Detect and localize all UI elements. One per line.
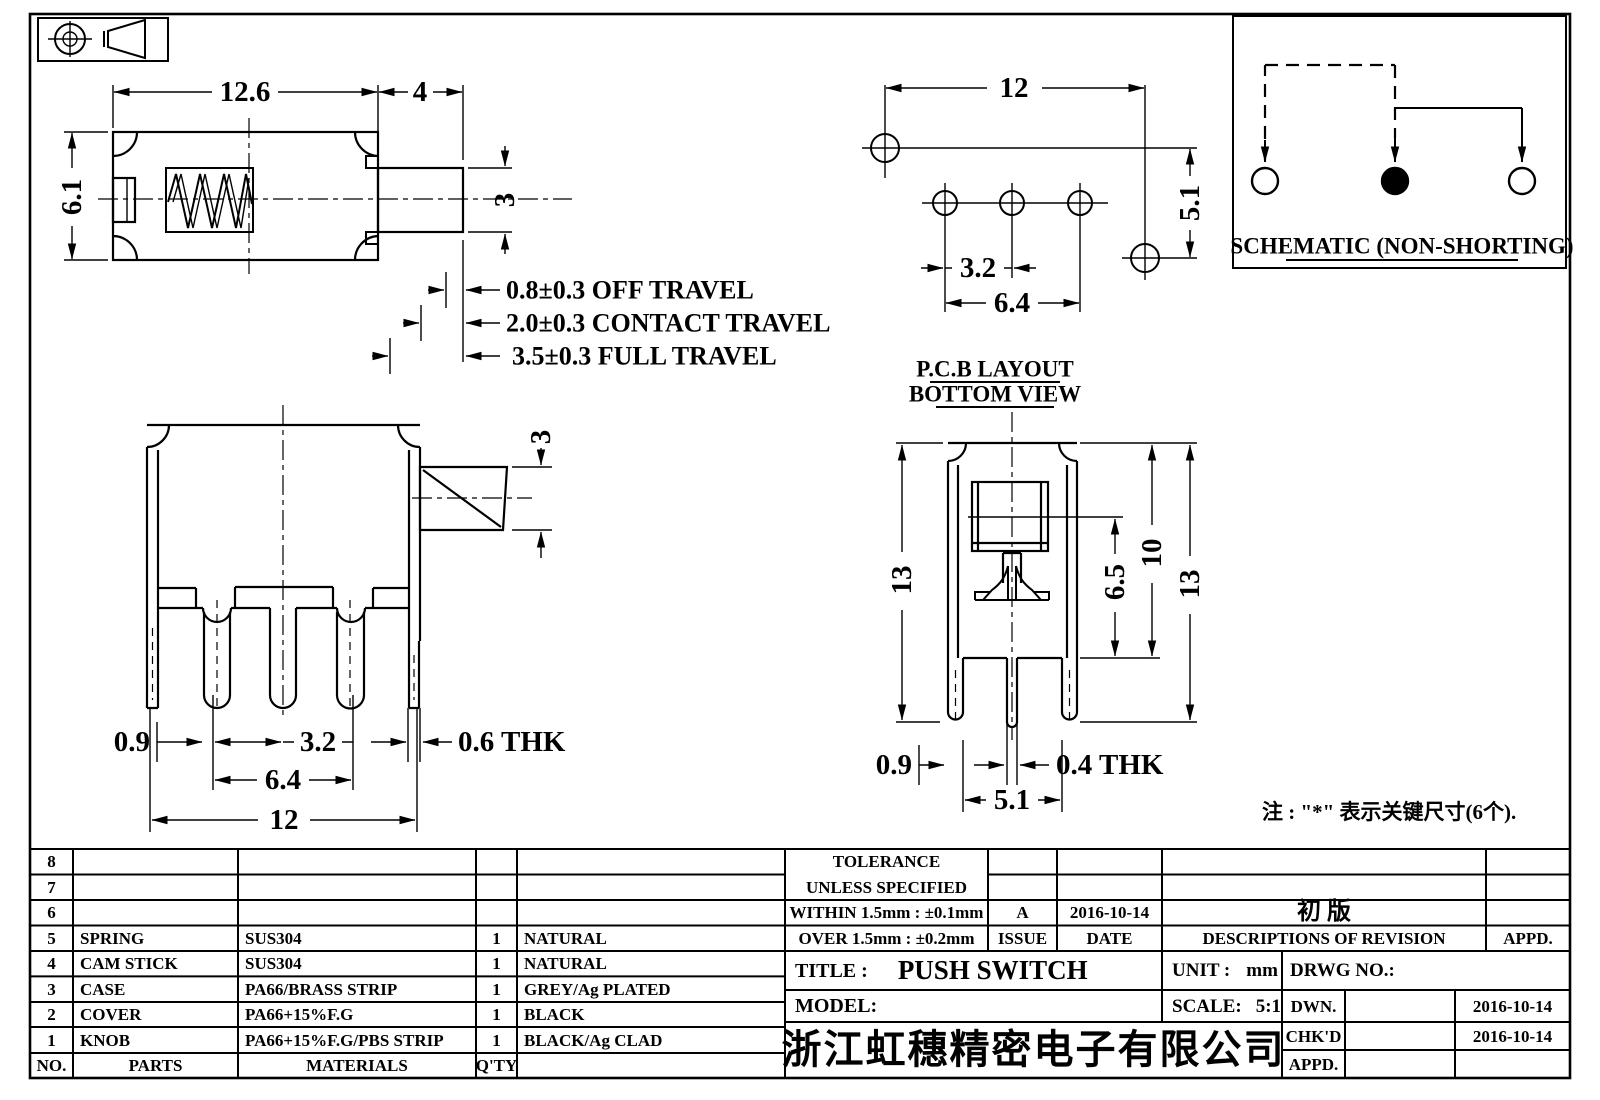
tolerance-subtitle: UNLESS SPECIFIED bbox=[785, 874, 988, 900]
pcb-caption-line1: P.C.B LAYOUT bbox=[916, 357, 1073, 382]
parts-row-qty-2: 1 bbox=[476, 1002, 517, 1027]
dim-full-travel: 3.5±0.3 FULL TRAVEL bbox=[512, 342, 777, 371]
parts-row-no-3: 3 bbox=[30, 976, 73, 1002]
scale-row: SCALE: 5:1 bbox=[1172, 990, 1277, 1022]
title-row: TITLE : PUSH SWITCH bbox=[795, 951, 1155, 990]
dim-side-height-right: 13 bbox=[1174, 570, 1206, 599]
date-label: DATE bbox=[1057, 925, 1162, 951]
dim-front-thk: 0.6 THK bbox=[458, 726, 566, 758]
dim-front-pitch: 3.2 bbox=[300, 726, 336, 758]
dim-pcb-height: 5.1 bbox=[1174, 185, 1206, 221]
tolerance-over: OVER 1.5mm : ±0.2mm bbox=[785, 925, 988, 951]
parts-row-part-2: COVER bbox=[73, 1002, 245, 1027]
dim-front-span: 6.4 bbox=[265, 764, 301, 796]
key-dimension-note: 注 : "*" 表示关键尺寸(6个). bbox=[1262, 800, 1516, 824]
dim-contact-travel: 2.0±0.3 CONTACT TRAVEL bbox=[506, 309, 830, 338]
parts-row-no-6: 6 bbox=[30, 900, 73, 925]
parts-row-no-7: 7 bbox=[30, 874, 73, 900]
parts-row-part-4: CAM STICK bbox=[73, 951, 245, 976]
parts-row-qty-1: 1 bbox=[476, 1027, 517, 1053]
schematic-pole-right bbox=[1509, 168, 1535, 194]
parts-row-material-2: PA66+15%F.G bbox=[238, 1002, 483, 1027]
dim-side-10: 10 bbox=[1136, 539, 1168, 568]
pcb-layout-dimensions: 12 5.1 3.2 6.4 bbox=[886, 72, 1206, 319]
parts-row-material-5: SUS304 bbox=[238, 925, 483, 951]
parts-row-no-1: 1 bbox=[30, 1027, 73, 1053]
tolerance-title: TOLERANCE bbox=[785, 849, 988, 874]
front-view-linework bbox=[147, 405, 532, 715]
pcb-layout-caption: P.C.B LAYOUT BOTTOM VIEW bbox=[909, 357, 1081, 408]
engineering-drawing-sheet: 12.6 4 6.1 3 0.8±0.3 OFF TRAVEL 2.0±0.3 … bbox=[0, 0, 1600, 1100]
schematic-pole-common bbox=[1382, 168, 1408, 194]
appd-row-label: APPD. bbox=[1282, 1050, 1345, 1078]
parts-row-part-1: KNOB bbox=[73, 1027, 245, 1053]
parts-row-no-5: 5 bbox=[30, 925, 73, 951]
revision-description-label: DESCRIPTIONS OF REVISION bbox=[1162, 925, 1486, 951]
schematic-caption: SCHEMATIC (NON-SHORTING) bbox=[1230, 234, 1573, 259]
travel-dimensions: 0.8±0.3 OFF TRAVEL 2.0±0.3 CONTACT TRAVE… bbox=[372, 272, 830, 374]
unit-value: mm bbox=[1246, 961, 1278, 980]
dim-pcb-pitch: 3.2 bbox=[960, 252, 996, 284]
dim-side-09: 0.9 bbox=[876, 749, 912, 781]
top-view-dimensions: 12.6 4 6.1 3 bbox=[56, 76, 521, 362]
parts-row-no-2: 2 bbox=[30, 1002, 73, 1027]
parts-row-part-5: SPRING bbox=[73, 925, 245, 951]
parts-row-qty-4: 1 bbox=[476, 951, 517, 976]
dim-pcb-width: 12 bbox=[1000, 72, 1029, 104]
parts-row-part-3: CASE bbox=[73, 976, 245, 1002]
dim-pcb-span: 6.4 bbox=[994, 287, 1030, 319]
parts-header-no: NO. bbox=[30, 1053, 73, 1078]
parts-row-finish-3: GREY/Ag PLATED bbox=[517, 976, 792, 1002]
parts-header-qty: Q'TY bbox=[476, 1053, 517, 1078]
dim-front-width: 12 bbox=[270, 804, 299, 836]
chkd-label: CHK'D bbox=[1282, 1022, 1345, 1050]
dim-front-knob-height: 3 bbox=[525, 430, 557, 445]
side-view-linework bbox=[948, 412, 1123, 740]
parts-row-no-8: 8 bbox=[30, 849, 73, 874]
parts-header-materials: MATERIALS bbox=[238, 1053, 476, 1078]
parts-row-finish-1: BLACK/Ag CLAD bbox=[517, 1027, 792, 1053]
appd-header-label: APPD. bbox=[1486, 925, 1570, 951]
dim-off-travel: 0.8±0.3 OFF TRAVEL bbox=[506, 276, 754, 305]
parts-header-parts: PARTS bbox=[73, 1053, 238, 1078]
pcb-caption-line2: BOTTOM VIEW bbox=[909, 382, 1081, 407]
revision-description-value: 初 版 bbox=[1162, 898, 1486, 925]
issue-value: A bbox=[988, 900, 1057, 925]
unit-label: UNIT : bbox=[1172, 961, 1230, 980]
drwg-no-label: DRWG NO.: bbox=[1290, 951, 1560, 990]
front-view-dimensions: 3 0.9 3.2 0.6 THK 6.4 12 bbox=[114, 430, 566, 836]
dwn-label: DWN. bbox=[1282, 990, 1345, 1022]
dim-front-09: 0.9 bbox=[114, 726, 150, 758]
issue-label: ISSUE bbox=[988, 925, 1057, 951]
dim-top-plunger-length: 4 bbox=[413, 76, 428, 108]
schematic-diagram: SCHEMATIC (NON-SHORTING) bbox=[1230, 16, 1573, 268]
title-value: PUSH SWITCH bbox=[898, 957, 1088, 984]
dim-top-width: 12.6 bbox=[220, 76, 271, 108]
dim-side-thk: 0.4 THK bbox=[1056, 749, 1164, 781]
schematic-pole-left bbox=[1252, 168, 1278, 194]
parts-row-material-1: PA66+15%F.G/PBS STRIP bbox=[238, 1027, 483, 1053]
projection-symbol-icon bbox=[38, 18, 168, 61]
parts-row-finish-5: NATURAL bbox=[517, 925, 792, 951]
scale-value: 5:1 bbox=[1256, 997, 1281, 1016]
company-name: 浙江虹穗精密电子有限公司 bbox=[785, 1022, 1282, 1078]
dim-side-span: 5.1 bbox=[994, 784, 1030, 816]
dim-top-plunger-height: 3 bbox=[489, 193, 521, 208]
dim-top-height: 6.1 bbox=[56, 179, 88, 215]
parts-row-no-4: 4 bbox=[30, 951, 73, 976]
parts-row-finish-4: NATURAL bbox=[517, 951, 792, 976]
title-label: TITLE : bbox=[795, 961, 868, 981]
parts-row-finish-2: BLACK bbox=[517, 1002, 792, 1027]
parts-row-qty-3: 1 bbox=[476, 976, 517, 1002]
unit-row: UNIT : mm bbox=[1172, 951, 1277, 990]
dim-side-height-left: 13 bbox=[886, 566, 918, 595]
parts-row-qty-5: 1 bbox=[476, 925, 517, 951]
tolerance-within: WITHIN 1.5mm : ±0.1mm bbox=[785, 900, 988, 925]
revision-date-value: 2016-10-14 bbox=[1057, 900, 1162, 925]
dwn-date: 2016-10-14 bbox=[1455, 990, 1570, 1022]
scale-label: SCALE: bbox=[1172, 997, 1242, 1016]
model-label: MODEL: bbox=[795, 990, 1155, 1022]
parts-row-material-4: SUS304 bbox=[238, 951, 483, 976]
pcb-layout-linework bbox=[862, 85, 1197, 312]
dim-side-65: 6.5 bbox=[1099, 564, 1131, 600]
chkd-date: 2016-10-14 bbox=[1455, 1022, 1570, 1050]
parts-row-material-3: PA66/BRASS STRIP bbox=[238, 976, 483, 1002]
